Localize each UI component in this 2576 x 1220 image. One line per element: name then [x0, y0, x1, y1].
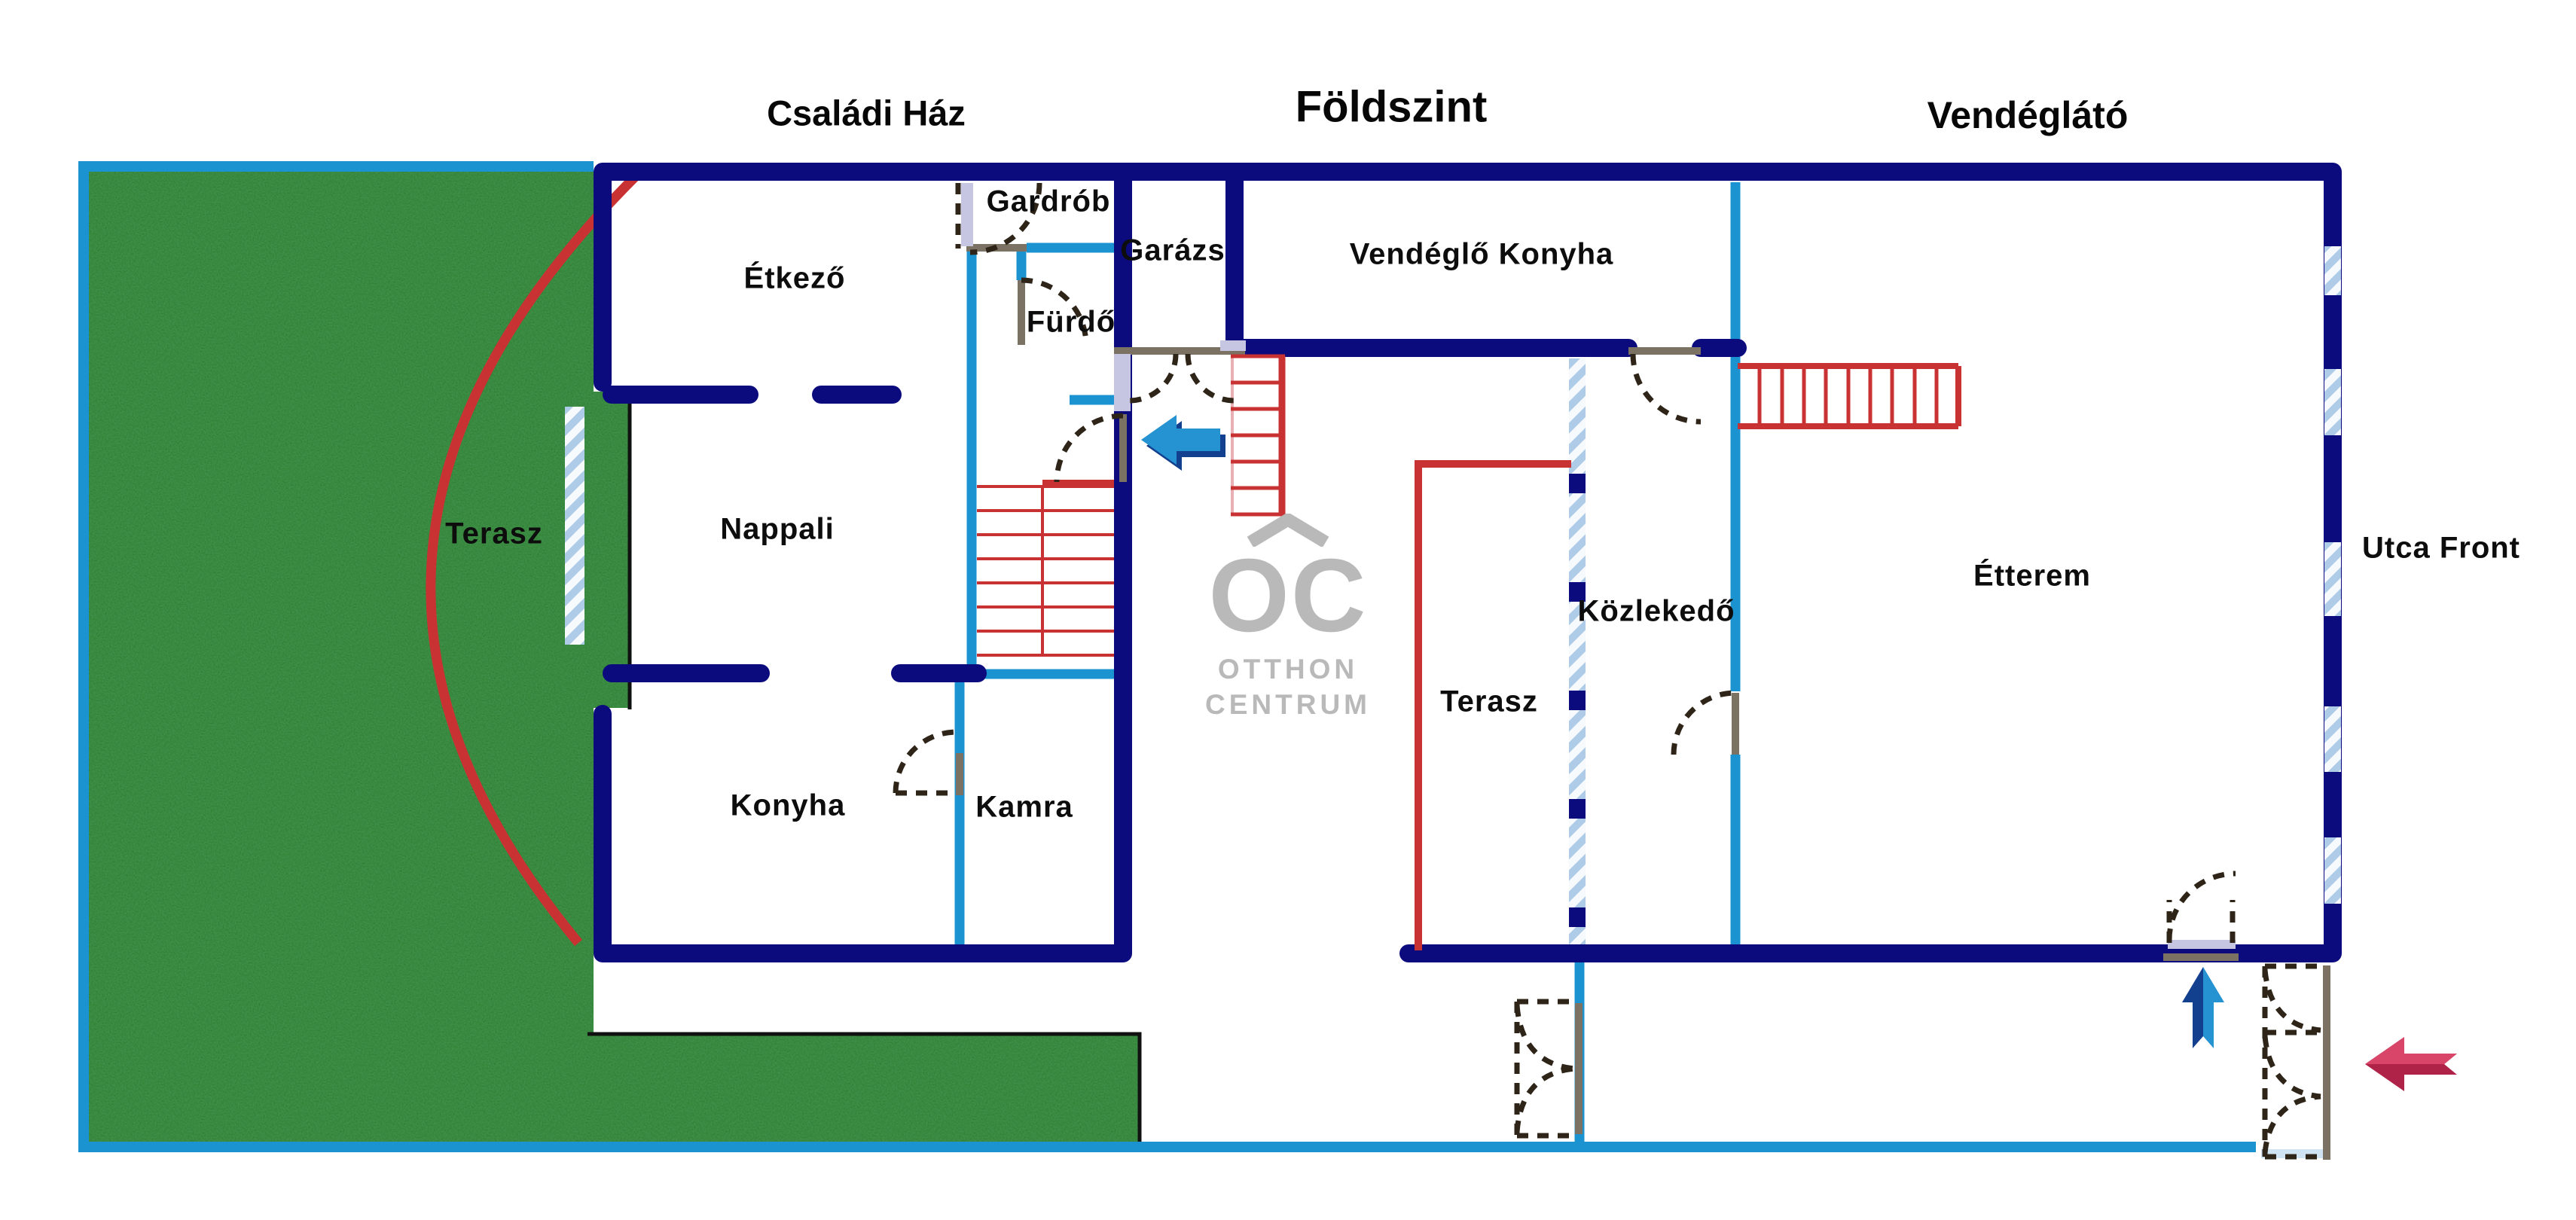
title-hospitality: Vendéglátó — [1927, 93, 2129, 137]
room-label-etkezo: Étkező — [744, 262, 846, 296]
courtyard-arrow — [2182, 967, 2224, 1048]
door-thresholds — [960, 248, 2327, 1160]
corridor-glass-wall — [1569, 358, 1586, 944]
logo-word-centrum: CENTRUM — [1205, 691, 1371, 718]
room-label-garazs: Garázs — [1120, 234, 1225, 268]
room-label-furdo: Fürdő — [1027, 306, 1116, 340]
title-ground-floor: Földszint — [1296, 82, 1488, 133]
room-label-nappali: Nappali — [720, 513, 834, 547]
door-leaves — [961, 183, 2323, 1158]
room-label-terasz-middle: Terasz — [1440, 685, 1538, 719]
room-label-gardrob: Gardrób — [987, 185, 1111, 219]
restaurant-stairs — [1738, 366, 1958, 426]
label-utca-front: Utca Front — [2362, 532, 2520, 566]
entry-stairs — [1231, 356, 1285, 514]
logo-word-otthon: OTTHON — [1205, 655, 1371, 683]
room-label-vendeglo-konyha: Vendéglő Konyha — [1350, 238, 1614, 272]
street-entrance-arrow — [2365, 1037, 2457, 1091]
room-label-terasz-garden: Terasz — [445, 517, 543, 551]
room-label-konyha: Konyha — [731, 789, 846, 823]
otthon-centrum-logo: OC OTTHON CENTRUM — [1205, 514, 1371, 718]
main-staircase — [977, 483, 1114, 655]
room-label-kozlekedo: Közlekedő — [1577, 595, 1735, 629]
floorplan-canvas: Családi Ház Földszint Vendéglátó Gardrób… — [0, 0, 2576, 1220]
entry-arrow — [1141, 415, 1225, 471]
title-family-house: Családi Ház — [767, 93, 966, 134]
terrace-window — [565, 407, 584, 645]
room-label-etterem: Étterem — [1973, 560, 2091, 593]
logo-monogram: OC — [1205, 544, 1371, 648]
plot-edge-lines — [588, 390, 1140, 1142]
room-label-kamra: Kamra — [975, 791, 1073, 825]
